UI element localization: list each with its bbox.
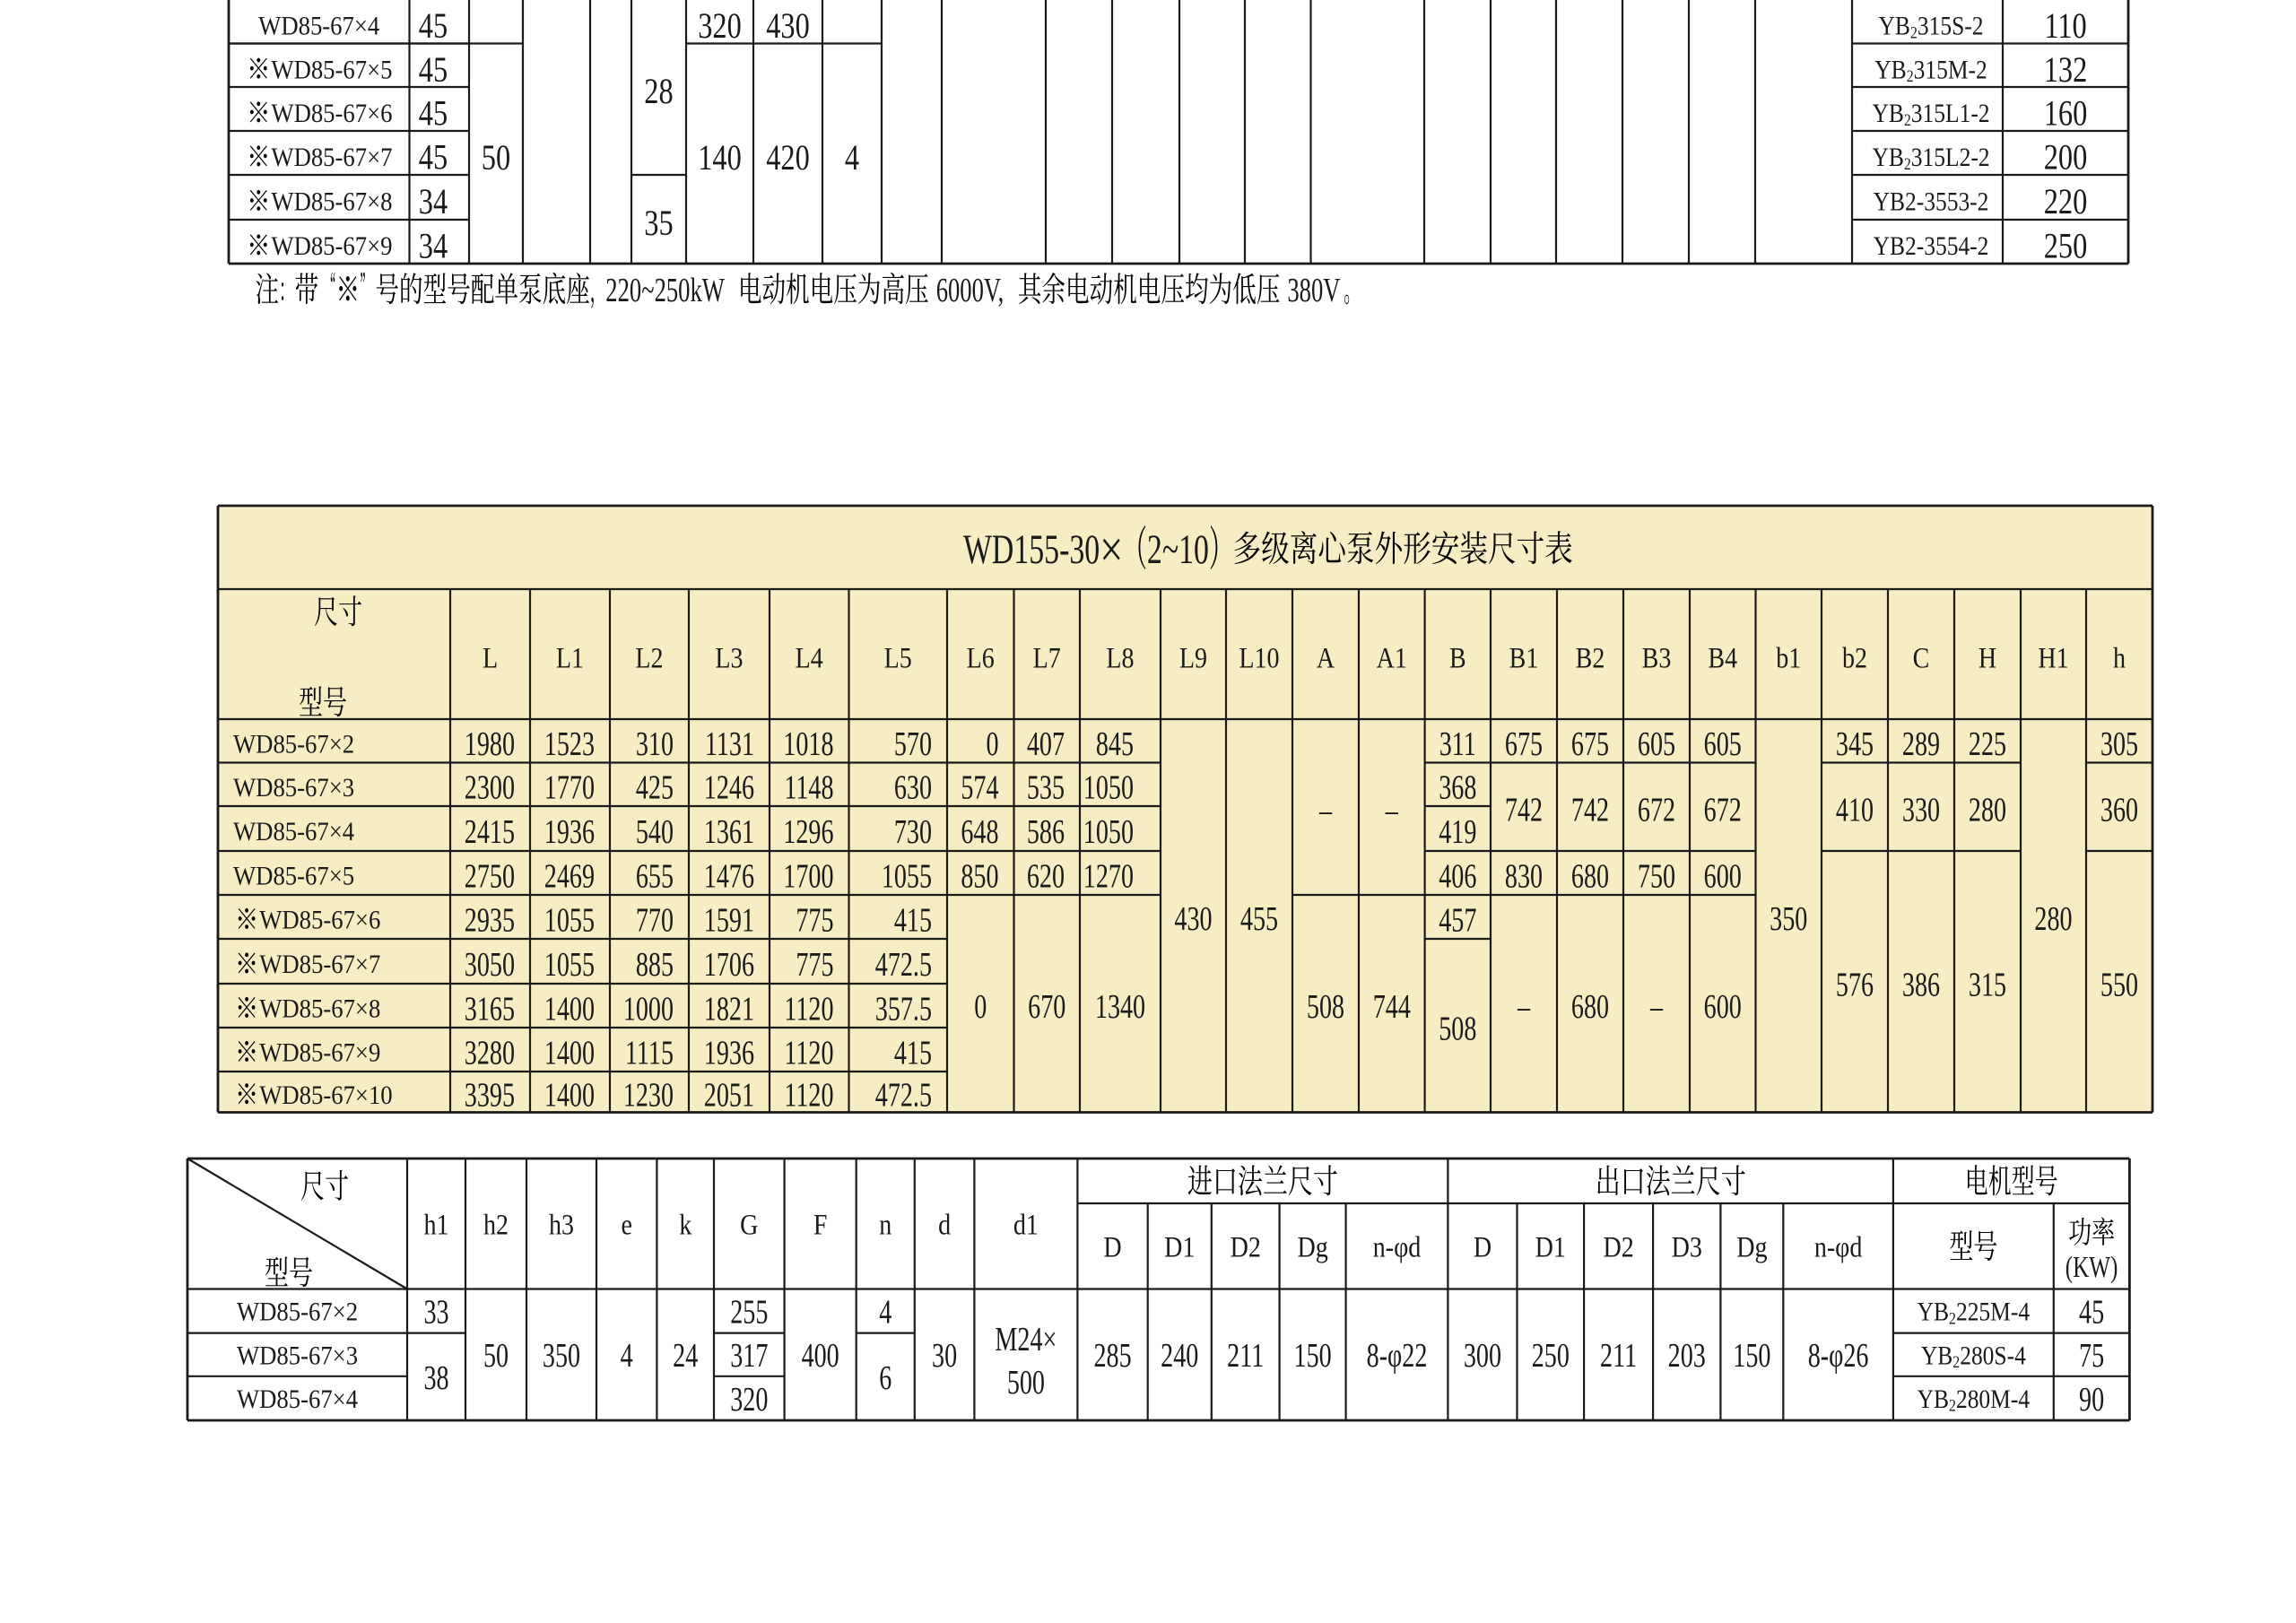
svg-text:WD85-67×3: WD85-67×3: [237, 1341, 358, 1371]
svg-text:C: C: [1913, 642, 1930, 675]
svg-text:1050: 1050: [1083, 813, 1134, 851]
svg-text:(KW): (KW): [2066, 1251, 2118, 1285]
svg-text:WD155-30: WD155-30: [963, 526, 1100, 573]
svg-text:e: e: [621, 1208, 631, 1241]
svg-text:B2: B2: [1576, 642, 1605, 675]
svg-text:d1: d1: [1013, 1208, 1039, 1241]
svg-text:h1: h1: [423, 1208, 448, 1241]
svg-text:605: 605: [1638, 725, 1675, 763]
svg-text:160: 160: [2044, 94, 2088, 134]
svg-text:b1: b1: [1776, 642, 1801, 675]
svg-text:255: 255: [730, 1294, 768, 1332]
svg-text:L2: L2: [635, 642, 663, 675]
svg-text:L5: L5: [884, 642, 912, 675]
svg-text:1055: 1055: [544, 946, 595, 984]
svg-text:–: –: [1649, 988, 1663, 1026]
svg-text:D2: D2: [1603, 1230, 1633, 1263]
svg-text:45: 45: [419, 50, 448, 90]
svg-text:675: 675: [1505, 725, 1543, 763]
svg-text:D1: D1: [1535, 1230, 1566, 1263]
svg-text:415: 415: [894, 1035, 932, 1072]
svg-text:WD85-67×6: WD85-67×6: [271, 100, 392, 129]
svg-text:655: 655: [636, 858, 674, 896]
svg-text:320: 320: [698, 6, 742, 46]
svg-text:670: 670: [1028, 988, 1065, 1026]
svg-text:1296: 1296: [783, 813, 833, 851]
svg-text:425: 425: [636, 769, 674, 807]
svg-text:F: F: [813, 1208, 828, 1241]
svg-text:220: 220: [2044, 182, 2088, 221]
svg-text:B4: B4: [1708, 642, 1737, 675]
svg-text:750: 750: [1638, 858, 1675, 896]
svg-text:Dg: Dg: [1297, 1230, 1327, 1263]
svg-text:YB2280M-4: YB2280M-4: [1918, 1384, 2031, 1415]
svg-text:415: 415: [894, 902, 932, 940]
svg-text:680: 680: [1571, 858, 1609, 896]
svg-text:1055: 1055: [544, 902, 595, 940]
svg-text:WD85-67×4: WD85-67×4: [258, 12, 379, 41]
svg-text:605: 605: [1704, 725, 1742, 763]
svg-text:WD85-67×4: WD85-67×4: [233, 818, 354, 847]
svg-text:A1: A1: [1377, 642, 1407, 675]
svg-text:407: 407: [1027, 725, 1065, 763]
svg-text:45: 45: [2079, 1294, 2104, 1332]
svg-text:3395: 3395: [465, 1077, 515, 1115]
svg-text:680: 680: [1571, 988, 1609, 1026]
svg-text:570: 570: [894, 725, 932, 763]
svg-text:317: 317: [730, 1337, 768, 1375]
svg-text:3165: 3165: [465, 991, 515, 1028]
svg-text:203: 203: [1668, 1337, 1706, 1375]
svg-text:b2: b2: [1842, 642, 1867, 675]
svg-text:742: 742: [1505, 792, 1543, 829]
svg-text:350: 350: [1770, 900, 1807, 938]
svg-text:150: 150: [1733, 1337, 1770, 1375]
svg-text:L1: L1: [556, 642, 584, 675]
svg-text:30: 30: [932, 1337, 957, 1375]
svg-text:YB2315L1-2: YB2315L1-2: [1872, 99, 1989, 129]
svg-text:1115: 1115: [625, 1035, 674, 1072]
svg-text:140: 140: [698, 138, 742, 178]
svg-text:1361: 1361: [704, 813, 754, 851]
svg-text:1000: 1000: [623, 991, 674, 1028]
svg-text:150: 150: [1294, 1337, 1332, 1375]
svg-text:1270: 1270: [1083, 858, 1134, 896]
svg-text:24: 24: [673, 1337, 698, 1375]
svg-text:2415: 2415: [465, 813, 515, 851]
svg-text:YB2-3554-2: YB2-3554-2: [1874, 231, 1989, 261]
svg-text:550: 550: [2100, 967, 2138, 1004]
svg-text:28: 28: [644, 72, 673, 111]
svg-text:472.5: 472.5: [875, 1077, 932, 1115]
svg-text:YB2225M-4: YB2225M-4: [1918, 1298, 2031, 1328]
svg-text:400: 400: [802, 1337, 839, 1375]
svg-text:4: 4: [845, 138, 859, 178]
svg-text:500: 500: [1007, 1364, 1045, 1402]
svg-text:WD85-67×4: WD85-67×4: [237, 1385, 358, 1415]
svg-text:H: H: [1979, 642, 1996, 675]
svg-text:775: 775: [796, 946, 833, 984]
svg-text:410: 410: [1836, 792, 1874, 829]
svg-text:1400: 1400: [544, 991, 595, 1028]
svg-text:–: –: [1517, 988, 1530, 1026]
svg-text:0: 0: [974, 988, 987, 1026]
svg-text:1821: 1821: [704, 991, 754, 1028]
svg-text:6000V,: 6000V,: [936, 273, 1004, 310]
svg-text:4: 4: [621, 1337, 633, 1375]
svg-text:535: 535: [1027, 769, 1065, 807]
svg-text:132: 132: [2044, 50, 2088, 90]
svg-text:WD85-67×6: WD85-67×6: [259, 906, 380, 935]
svg-text:34: 34: [419, 227, 448, 266]
svg-text:D: D: [1103, 1230, 1121, 1263]
svg-text:L6: L6: [967, 642, 995, 675]
svg-text:586: 586: [1027, 813, 1065, 851]
svg-text:34: 34: [419, 182, 448, 221]
svg-text:430: 430: [1174, 900, 1212, 938]
svg-text:35: 35: [644, 204, 673, 243]
svg-text:1400: 1400: [544, 1077, 595, 1115]
svg-text:WD85-67×9: WD85-67×9: [271, 232, 392, 262]
svg-text:675: 675: [1571, 725, 1609, 763]
svg-text:2935: 2935: [465, 902, 515, 940]
svg-text:2300: 2300: [465, 769, 515, 807]
svg-text:845: 845: [1096, 725, 1134, 763]
svg-text:1523: 1523: [544, 725, 595, 763]
svg-text:850: 850: [961, 858, 998, 896]
svg-text:3280: 3280: [465, 1035, 515, 1072]
svg-text:8-φ22: 8-φ22: [1367, 1337, 1428, 1375]
svg-text:345: 345: [1836, 725, 1874, 763]
svg-text:WD85-67×9: WD85-67×9: [259, 1038, 380, 1068]
svg-text:250: 250: [2044, 227, 2088, 266]
svg-text:620: 620: [1027, 858, 1065, 896]
svg-text:576: 576: [1836, 967, 1874, 1004]
svg-text:k: k: [679, 1208, 692, 1241]
svg-text:B: B: [1449, 642, 1466, 675]
svg-text:0: 0: [986, 725, 998, 763]
svg-text:1148: 1148: [784, 769, 833, 807]
svg-text:1120: 1120: [784, 991, 833, 1028]
svg-text:830: 830: [1505, 858, 1543, 896]
svg-text:744: 744: [1373, 988, 1411, 1026]
svg-text:n-φd: n-φd: [1814, 1230, 1863, 1263]
svg-text:457: 457: [1439, 902, 1476, 940]
svg-text:WD85-67×5: WD85-67×5: [271, 56, 392, 85]
svg-text:90: 90: [2079, 1381, 2104, 1419]
svg-text:–: –: [1385, 792, 1398, 829]
svg-text:211: 211: [1600, 1337, 1637, 1375]
svg-text:300: 300: [1464, 1337, 1501, 1375]
svg-text:419: 419: [1439, 813, 1476, 851]
svg-text:n: n: [879, 1208, 891, 1241]
svg-text:6: 6: [879, 1359, 891, 1397]
svg-text:L3: L3: [715, 642, 743, 675]
svg-text:280: 280: [1969, 792, 2006, 829]
svg-text:WD85-67×7: WD85-67×7: [259, 950, 380, 980]
svg-text:45: 45: [419, 6, 448, 46]
svg-text:350: 350: [543, 1337, 580, 1375]
svg-text:1131: 1131: [705, 725, 754, 763]
svg-text:WD85-67×3: WD85-67×3: [233, 774, 354, 803]
svg-text:L9: L9: [1179, 642, 1207, 675]
svg-text:311: 311: [1439, 725, 1476, 763]
svg-text:1936: 1936: [544, 813, 595, 851]
svg-text:310: 310: [636, 725, 674, 763]
svg-text:315: 315: [1969, 967, 2006, 1004]
svg-text:672: 672: [1704, 792, 1742, 829]
svg-text:225: 225: [1969, 725, 2006, 763]
svg-text:1476: 1476: [704, 858, 754, 896]
svg-text:430: 430: [766, 6, 810, 46]
svg-text:WD85-67×7: WD85-67×7: [271, 143, 392, 173]
svg-text:1246: 1246: [704, 769, 754, 807]
svg-text:1980: 1980: [465, 725, 515, 763]
svg-text:630: 630: [894, 769, 932, 807]
svg-text:38: 38: [423, 1359, 448, 1397]
svg-text:50: 50: [483, 1337, 509, 1375]
svg-text:45: 45: [419, 94, 448, 134]
svg-text:770: 770: [636, 902, 674, 940]
svg-text:WD85-67×5: WD85-67×5: [233, 862, 354, 891]
svg-text:1120: 1120: [784, 1035, 833, 1072]
svg-text:368: 368: [1439, 769, 1476, 807]
svg-text:240: 240: [1161, 1337, 1198, 1375]
svg-text:420: 420: [766, 138, 810, 178]
svg-text:WD85-67×2: WD85-67×2: [233, 730, 354, 759]
svg-text:3050: 3050: [465, 946, 515, 984]
svg-text:220~250kW: 220~250kW: [605, 273, 725, 310]
svg-text:YB2315L2-2: YB2315L2-2: [1872, 143, 1989, 173]
svg-text:1700: 1700: [783, 858, 833, 896]
svg-text:672: 672: [1638, 792, 1675, 829]
svg-text:406: 406: [1439, 858, 1476, 896]
svg-text:600: 600: [1704, 858, 1742, 896]
svg-text:WD85-67×2: WD85-67×2: [237, 1298, 358, 1327]
svg-text:4: 4: [879, 1294, 891, 1332]
svg-text:WD85-67×8: WD85-67×8: [271, 187, 392, 217]
svg-text:289: 289: [1902, 725, 1940, 763]
svg-text:L10: L10: [1239, 642, 1279, 675]
svg-text:Dg: Dg: [1736, 1230, 1767, 1263]
svg-text:211: 211: [1227, 1337, 1264, 1375]
svg-text:380V: 380V: [1287, 273, 1340, 310]
svg-text:n-φd: n-φd: [1373, 1230, 1422, 1263]
svg-text:600: 600: [1704, 988, 1742, 1026]
svg-text:L: L: [483, 642, 498, 675]
svg-text:1591: 1591: [704, 902, 754, 940]
svg-text:648: 648: [961, 813, 998, 851]
svg-text:775: 775: [796, 902, 833, 940]
svg-text:250: 250: [1532, 1337, 1570, 1375]
svg-text:285: 285: [1093, 1337, 1131, 1375]
svg-text:1120: 1120: [784, 1077, 833, 1115]
svg-text:1055: 1055: [882, 858, 932, 896]
svg-text:YB2315M-2: YB2315M-2: [1874, 55, 1987, 85]
svg-text:B3: B3: [1642, 642, 1672, 675]
svg-text:×: ×: [1100, 521, 1123, 578]
svg-text:2750: 2750: [465, 858, 515, 896]
svg-text:WD85-67×10: WD85-67×10: [259, 1081, 392, 1111]
svg-text:360: 360: [2100, 792, 2138, 829]
svg-text:357.5: 357.5: [875, 991, 932, 1028]
svg-text:330: 330: [1902, 792, 1940, 829]
svg-text:H1: H1: [2038, 642, 2068, 675]
svg-text:33: 33: [423, 1294, 448, 1332]
svg-text:WD85-67×8: WD85-67×8: [259, 994, 380, 1024]
svg-text:M24×: M24×: [995, 1321, 1057, 1358]
svg-text:305: 305: [2100, 725, 2138, 763]
svg-text:h2: h2: [483, 1208, 509, 1241]
svg-text:508: 508: [1439, 1011, 1476, 1048]
svg-text:75: 75: [2079, 1337, 2104, 1375]
svg-text:574: 574: [961, 769, 998, 807]
svg-text:742: 742: [1571, 792, 1609, 829]
svg-text:280: 280: [2034, 900, 2072, 938]
svg-text:YB2280S-4: YB2280S-4: [1921, 1341, 2026, 1371]
svg-text:D3: D3: [1672, 1230, 1702, 1263]
svg-text:YB2315S-2: YB2315S-2: [1879, 12, 1984, 42]
svg-text:455: 455: [1240, 900, 1278, 938]
svg-text:50: 50: [482, 138, 510, 178]
svg-text:508: 508: [1307, 988, 1344, 1026]
svg-text:386: 386: [1902, 967, 1940, 1004]
svg-text:h: h: [2113, 642, 2126, 675]
svg-text:1050: 1050: [1083, 769, 1134, 807]
svg-text:1706: 1706: [704, 946, 754, 984]
svg-text:730: 730: [894, 813, 932, 851]
svg-text:1230: 1230: [623, 1077, 674, 1115]
svg-text:540: 540: [636, 813, 674, 851]
svg-text:8-φ26: 8-φ26: [1808, 1337, 1869, 1375]
svg-text:1936: 1936: [704, 1035, 754, 1072]
svg-text:D: D: [1474, 1230, 1492, 1263]
svg-text:d: d: [938, 1208, 951, 1241]
svg-text:YB2-3553-2: YB2-3553-2: [1874, 187, 1989, 217]
svg-text:110: 110: [2044, 6, 2086, 46]
svg-text:45: 45: [419, 138, 448, 178]
svg-text:L8: L8: [1106, 642, 1134, 675]
svg-text:200: 200: [2044, 138, 2088, 178]
svg-text:1018: 1018: [783, 725, 833, 763]
svg-text:2~10: 2~10: [1147, 526, 1209, 573]
svg-text:2051: 2051: [704, 1077, 754, 1115]
svg-text:885: 885: [636, 946, 674, 984]
svg-text:h3: h3: [549, 1208, 574, 1241]
svg-text:1770: 1770: [544, 769, 595, 807]
svg-text:320: 320: [730, 1381, 768, 1419]
svg-text:D1: D1: [1164, 1230, 1195, 1263]
svg-text:L4: L4: [796, 642, 823, 675]
svg-text:–: –: [1318, 792, 1332, 829]
svg-text:472.5: 472.5: [875, 946, 932, 984]
svg-text:1340: 1340: [1095, 988, 1145, 1026]
svg-text:L7: L7: [1033, 642, 1061, 675]
svg-text:1400: 1400: [544, 1035, 595, 1072]
svg-text:2469: 2469: [544, 858, 595, 896]
svg-text:G: G: [740, 1208, 758, 1241]
svg-text:A: A: [1317, 642, 1335, 675]
svg-text:D2: D2: [1231, 1230, 1261, 1263]
svg-text:B1: B1: [1509, 642, 1539, 675]
